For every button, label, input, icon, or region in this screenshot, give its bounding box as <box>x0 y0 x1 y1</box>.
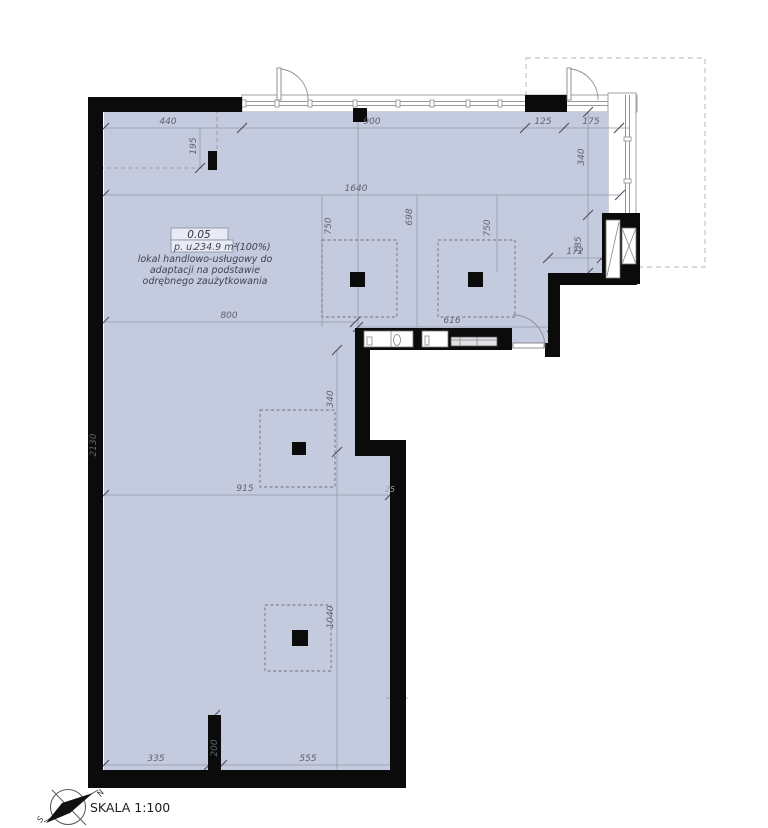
dim-label: 698 <box>405 208 415 225</box>
window-band-right <box>608 93 636 215</box>
dim-label: 175 <box>582 117 599 127</box>
floor-plan-drawing: 0.05 p. u. 234.9 m² (100%) lokal handlow… <box>0 0 768 828</box>
dim-label: 800 <box>220 311 237 321</box>
column <box>350 272 365 287</box>
room-area-prefix: p. u. <box>173 242 195 253</box>
window-band-top <box>242 95 637 112</box>
dim-label: 915 <box>236 484 253 494</box>
window-frame <box>608 93 636 215</box>
wall-bottom <box>88 770 406 788</box>
dim-label: 2130 <box>89 433 99 456</box>
wall-corridor-vertical <box>548 273 560 355</box>
wall-mid-vertical <box>355 343 370 456</box>
floor-plan-page: 0.05 p. u. 234.9 m² (100%) lokal handlow… <box>0 0 768 828</box>
dim-label: 335 <box>147 754 164 764</box>
dim-label: 1040 <box>326 605 336 628</box>
dim-label: 340 <box>577 148 587 165</box>
dim-label: 200 <box>210 739 220 756</box>
room-description-line: adaptacji na podstawie <box>150 265 260 276</box>
window-mullion <box>624 137 631 141</box>
door-leaf <box>277 68 281 100</box>
scale-label: SKALA 1:100 <box>90 800 170 815</box>
dim-label: 616 <box>443 316 460 326</box>
dim-label: 900 <box>363 117 380 127</box>
dim-label: 750 <box>483 219 493 236</box>
dim-label: 340 <box>326 390 336 407</box>
counter <box>451 337 497 346</box>
door-leaf <box>513 343 544 348</box>
window-frame <box>242 95 637 112</box>
dim-label: 750 <box>324 217 334 234</box>
room-description-line: odrębnego zaużytkowania <box>143 276 268 287</box>
column <box>292 442 306 455</box>
room-number: 0.05 <box>187 229 211 241</box>
dim-label: 555 <box>299 754 316 764</box>
wall-top-pier <box>525 95 567 112</box>
dim-label: 125 <box>534 117 551 127</box>
window-mullion <box>624 179 631 183</box>
wall-door-jamb <box>545 343 560 357</box>
dim-label: 25 <box>385 485 395 494</box>
compass-south-label: S <box>35 815 45 824</box>
dim-label: 172 <box>566 247 583 257</box>
wall-stub-top-left <box>208 151 217 170</box>
door-leaf <box>567 68 571 100</box>
column <box>468 272 483 287</box>
room-area-value: 234.9 m² <box>194 242 237 253</box>
room-area-percent: (100%) <box>236 242 271 253</box>
compass-north-label: N <box>95 788 106 798</box>
wall-top <box>88 97 242 112</box>
dim-label: 440 <box>159 117 176 127</box>
dim-label: 1640 <box>345 184 368 194</box>
column <box>292 630 308 646</box>
room-description-line: lokal handlowo-usługowy do <box>138 254 273 265</box>
dim-label: 195 <box>189 137 199 154</box>
